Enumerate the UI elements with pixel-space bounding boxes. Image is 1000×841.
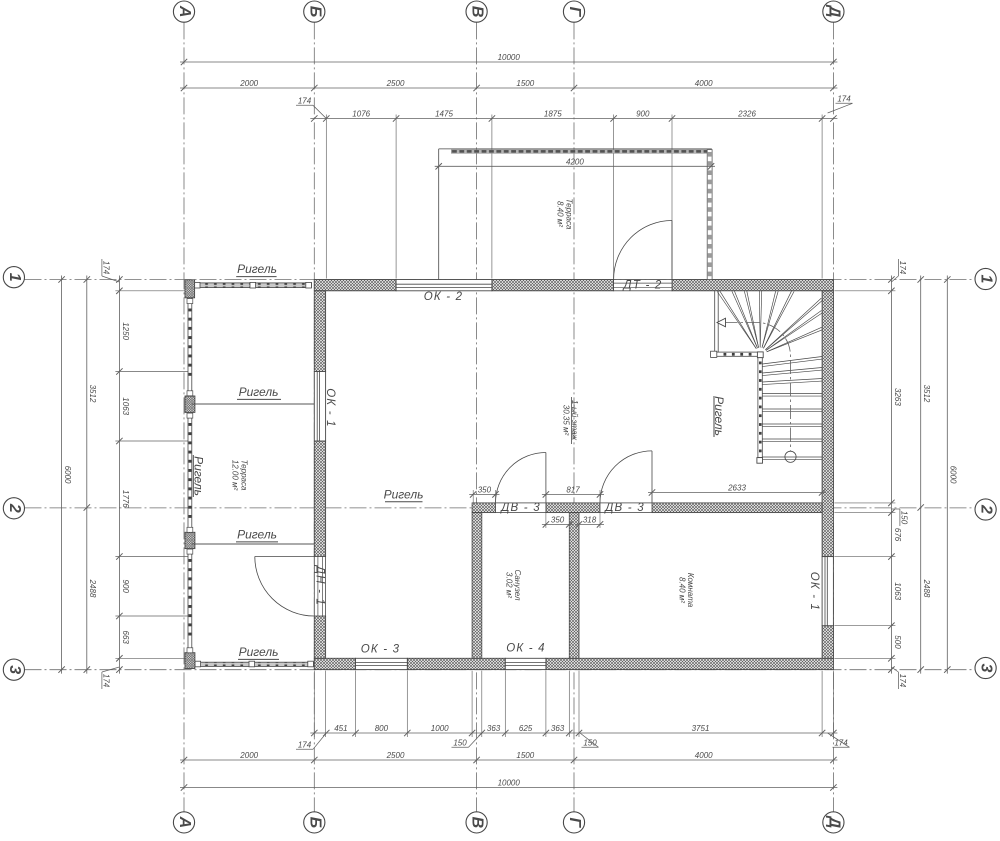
- svg-text:Ригель: Ригель: [384, 487, 424, 501]
- svg-text:318: 318: [583, 515, 597, 524]
- svg-text:3512: 3512: [88, 385, 97, 403]
- svg-text:ОК - 1: ОК - 1: [808, 572, 820, 612]
- svg-text:ДВ - 3: ДВ - 3: [499, 502, 541, 514]
- svg-text:2500: 2500: [386, 751, 405, 760]
- svg-text:Комната: Комната: [686, 573, 695, 608]
- svg-text:174: 174: [834, 739, 848, 748]
- svg-text:Ригель: Ригель: [237, 262, 277, 276]
- svg-text:350: 350: [478, 485, 492, 494]
- svg-text:ОК - 2: ОК - 2: [424, 291, 464, 303]
- svg-text:363: 363: [551, 724, 565, 733]
- svg-text:800: 800: [375, 724, 389, 733]
- svg-text:2633: 2633: [727, 484, 746, 493]
- svg-text:4000: 4000: [695, 79, 713, 88]
- svg-text:1500: 1500: [516, 79, 534, 88]
- svg-text:900: 900: [121, 580, 130, 594]
- svg-text:1076: 1076: [352, 110, 370, 119]
- svg-text:Ригель: Ригель: [239, 645, 279, 659]
- svg-text:150: 150: [453, 739, 467, 748]
- svg-text:ОК - 3: ОК - 3: [361, 644, 401, 656]
- svg-text:3.02 м²: 3.02 м²: [505, 572, 514, 598]
- svg-text:676: 676: [893, 528, 902, 542]
- svg-text:2500: 2500: [386, 79, 405, 88]
- svg-text:174: 174: [102, 674, 111, 688]
- svg-text:6000: 6000: [949, 466, 958, 484]
- svg-text:ДН - 1: ДН - 1: [313, 564, 325, 606]
- svg-text:Терраса: Терраса: [564, 199, 573, 230]
- svg-text:174: 174: [298, 97, 312, 106]
- svg-text:174: 174: [898, 674, 907, 688]
- svg-text:1063: 1063: [893, 582, 902, 600]
- svg-text:30.35 м²: 30.35 м²: [561, 405, 570, 436]
- svg-text:1250: 1250: [121, 322, 130, 340]
- svg-text:8.40 м²: 8.40 м²: [556, 201, 565, 227]
- svg-text:ДВ - 3: ДВ - 3: [603, 502, 645, 514]
- svg-text:2326: 2326: [737, 110, 756, 119]
- svg-text:1000: 1000: [431, 724, 449, 733]
- svg-text:3263: 3263: [893, 388, 902, 406]
- svg-text:Д: Д: [825, 815, 842, 829]
- svg-text:3: 3: [978, 664, 995, 673]
- svg-text:В: В: [469, 6, 486, 18]
- svg-text:Б: Б: [306, 6, 323, 17]
- svg-text:Г: Г: [566, 817, 583, 828]
- svg-text:900: 900: [636, 110, 650, 119]
- svg-text:А: А: [176, 816, 193, 829]
- svg-text:1776: 1776: [121, 490, 130, 508]
- svg-text:451: 451: [334, 724, 347, 733]
- svg-text:8.40 м²: 8.40 м²: [677, 577, 686, 603]
- svg-text:1: 1: [978, 275, 995, 284]
- svg-text:500: 500: [893, 635, 902, 649]
- svg-text:2: 2: [978, 504, 995, 514]
- svg-text:4000: 4000: [695, 751, 713, 760]
- svg-text:174: 174: [102, 261, 111, 275]
- svg-text:1500: 1500: [516, 751, 534, 760]
- svg-text:ОК - 1: ОК - 1: [324, 388, 336, 428]
- svg-text:Г: Г: [566, 7, 583, 18]
- svg-text:10000: 10000: [498, 53, 521, 62]
- svg-text:350: 350: [551, 515, 565, 524]
- svg-text:ОК - 4: ОК - 4: [506, 643, 546, 655]
- svg-text:1063: 1063: [121, 397, 130, 415]
- svg-text:2488: 2488: [88, 579, 97, 598]
- svg-text:Б: Б: [306, 817, 323, 828]
- svg-text:625: 625: [519, 724, 533, 733]
- svg-text:А: А: [176, 5, 193, 18]
- svg-text:10000: 10000: [498, 779, 521, 788]
- svg-text:174: 174: [837, 95, 851, 104]
- svg-text:663: 663: [121, 631, 130, 645]
- svg-text:2000: 2000: [239, 751, 258, 760]
- svg-text:4200: 4200: [566, 157, 584, 166]
- svg-text:В: В: [469, 817, 486, 829]
- svg-text:3751: 3751: [692, 724, 710, 733]
- svg-text:2: 2: [6, 503, 23, 513]
- svg-text:363: 363: [487, 724, 501, 733]
- svg-text:Терраса: Терраса: [240, 460, 249, 491]
- svg-text:174: 174: [898, 261, 907, 275]
- svg-text:Ригель: Ригель: [239, 385, 279, 399]
- svg-text:1475: 1475: [435, 110, 453, 119]
- svg-text:3512: 3512: [922, 385, 931, 403]
- svg-text:174: 174: [298, 741, 312, 750]
- svg-text:2488: 2488: [922, 579, 931, 598]
- svg-text:Ригель: Ригель: [237, 528, 277, 542]
- svg-text:ДТ - 2: ДТ - 2: [622, 280, 663, 292]
- svg-text:Д: Д: [825, 4, 842, 18]
- svg-text:1: 1: [6, 273, 23, 282]
- svg-text:817: 817: [566, 485, 580, 494]
- svg-text:1875: 1875: [544, 110, 562, 119]
- svg-text:6000: 6000: [63, 466, 72, 484]
- svg-text:150: 150: [900, 511, 909, 525]
- svg-text:12.00 м²: 12.00 м²: [231, 460, 240, 491]
- svg-text:2000: 2000: [239, 79, 258, 88]
- svg-text:3: 3: [6, 665, 23, 674]
- svg-text:150: 150: [583, 739, 597, 748]
